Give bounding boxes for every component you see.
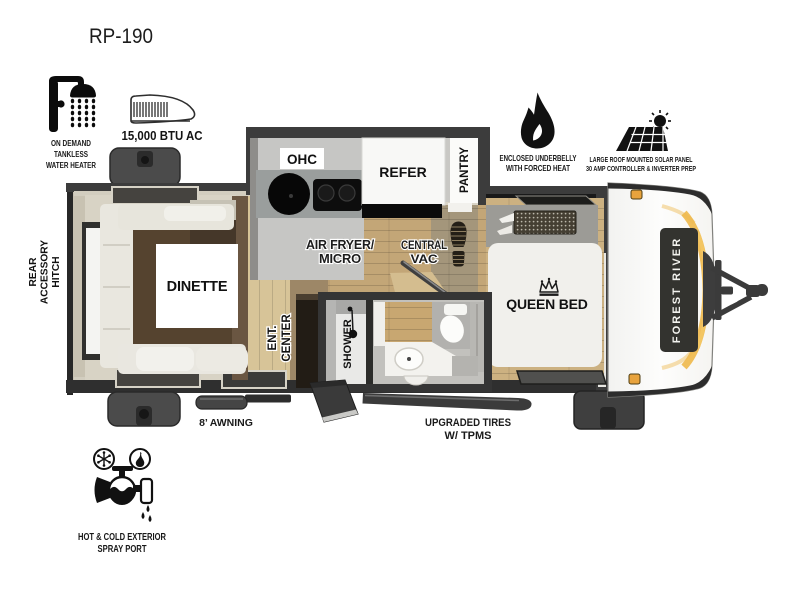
svg-text:8’ AWNING: 8’ AWNING (199, 417, 253, 429)
svg-text:UPGRADED TIRES: UPGRADED TIRES (425, 417, 511, 429)
svg-text:SHOWER: SHOWER (342, 319, 354, 369)
svg-text:CENTER: CENTER (281, 314, 293, 362)
svg-text:QUEEN BED: QUEEN BED (506, 296, 588, 312)
svg-text:30 AMP CONTROLLER & INVERTER P: 30 AMP CONTROLLER & INVERTER PREP (586, 166, 696, 173)
svg-text:ON DEMAND: ON DEMAND (51, 139, 91, 148)
svg-text:ENT.: ENT. (267, 326, 279, 351)
svg-text:15,000 BTU AC: 15,000 BTU AC (122, 128, 204, 143)
svg-text:W/ TPMS: W/ TPMS (444, 430, 491, 442)
svg-text:HITCH: HITCH (51, 256, 62, 287)
svg-text:RP-190: RP-190 (89, 25, 153, 48)
svg-text:LARGE ROOF MOUNTED SOLAR PANEL: LARGE ROOF MOUNTED SOLAR PANEL (590, 157, 694, 164)
svg-text:ENCLOSED UNDERBELLY: ENCLOSED UNDERBELLY (500, 154, 577, 163)
svg-text:FOREST RIVER: FOREST RIVER (671, 237, 683, 344)
svg-text:AIR FRYER/: AIR FRYER/ (306, 238, 375, 252)
svg-text:DINETTE: DINETTE (167, 279, 228, 295)
svg-text:ACCESSORY: ACCESSORY (40, 240, 51, 304)
svg-text:WATER HEATER: WATER HEATER (46, 161, 96, 170)
svg-text:REAR: REAR (28, 257, 39, 287)
svg-text:TANKLESS: TANKLESS (54, 150, 89, 159)
svg-text:VAC: VAC (411, 252, 439, 266)
svg-text:REFER: REFER (379, 164, 426, 180)
svg-text:HOT & COLD EXTERIOR: HOT & COLD EXTERIOR (78, 531, 166, 543)
svg-text:SPRAY PORT: SPRAY PORT (98, 543, 147, 555)
svg-text:CENTRAL: CENTRAL (401, 238, 447, 252)
svg-text:OHC: OHC (287, 152, 317, 167)
svg-text:MICRO: MICRO (319, 252, 361, 266)
svg-text:WITH FORCED HEAT: WITH FORCED HEAT (506, 164, 570, 173)
svg-text:PANTRY: PANTRY (459, 147, 471, 193)
